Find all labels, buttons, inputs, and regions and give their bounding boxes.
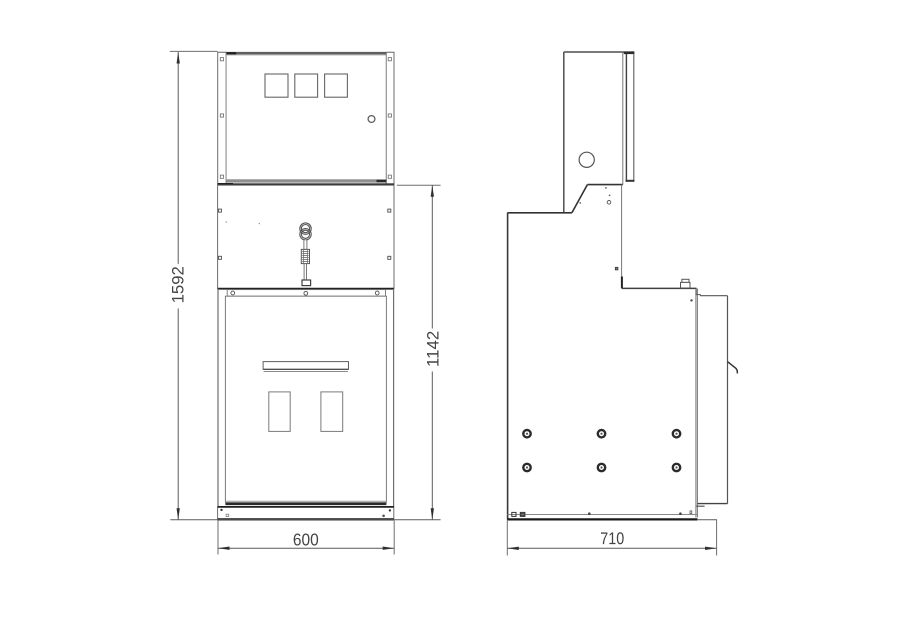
svg-text:710: 710: [600, 529, 624, 548]
svg-text:1142: 1142: [423, 331, 442, 367]
svg-text:600: 600: [293, 530, 319, 549]
svg-text:1592: 1592: [169, 266, 188, 303]
